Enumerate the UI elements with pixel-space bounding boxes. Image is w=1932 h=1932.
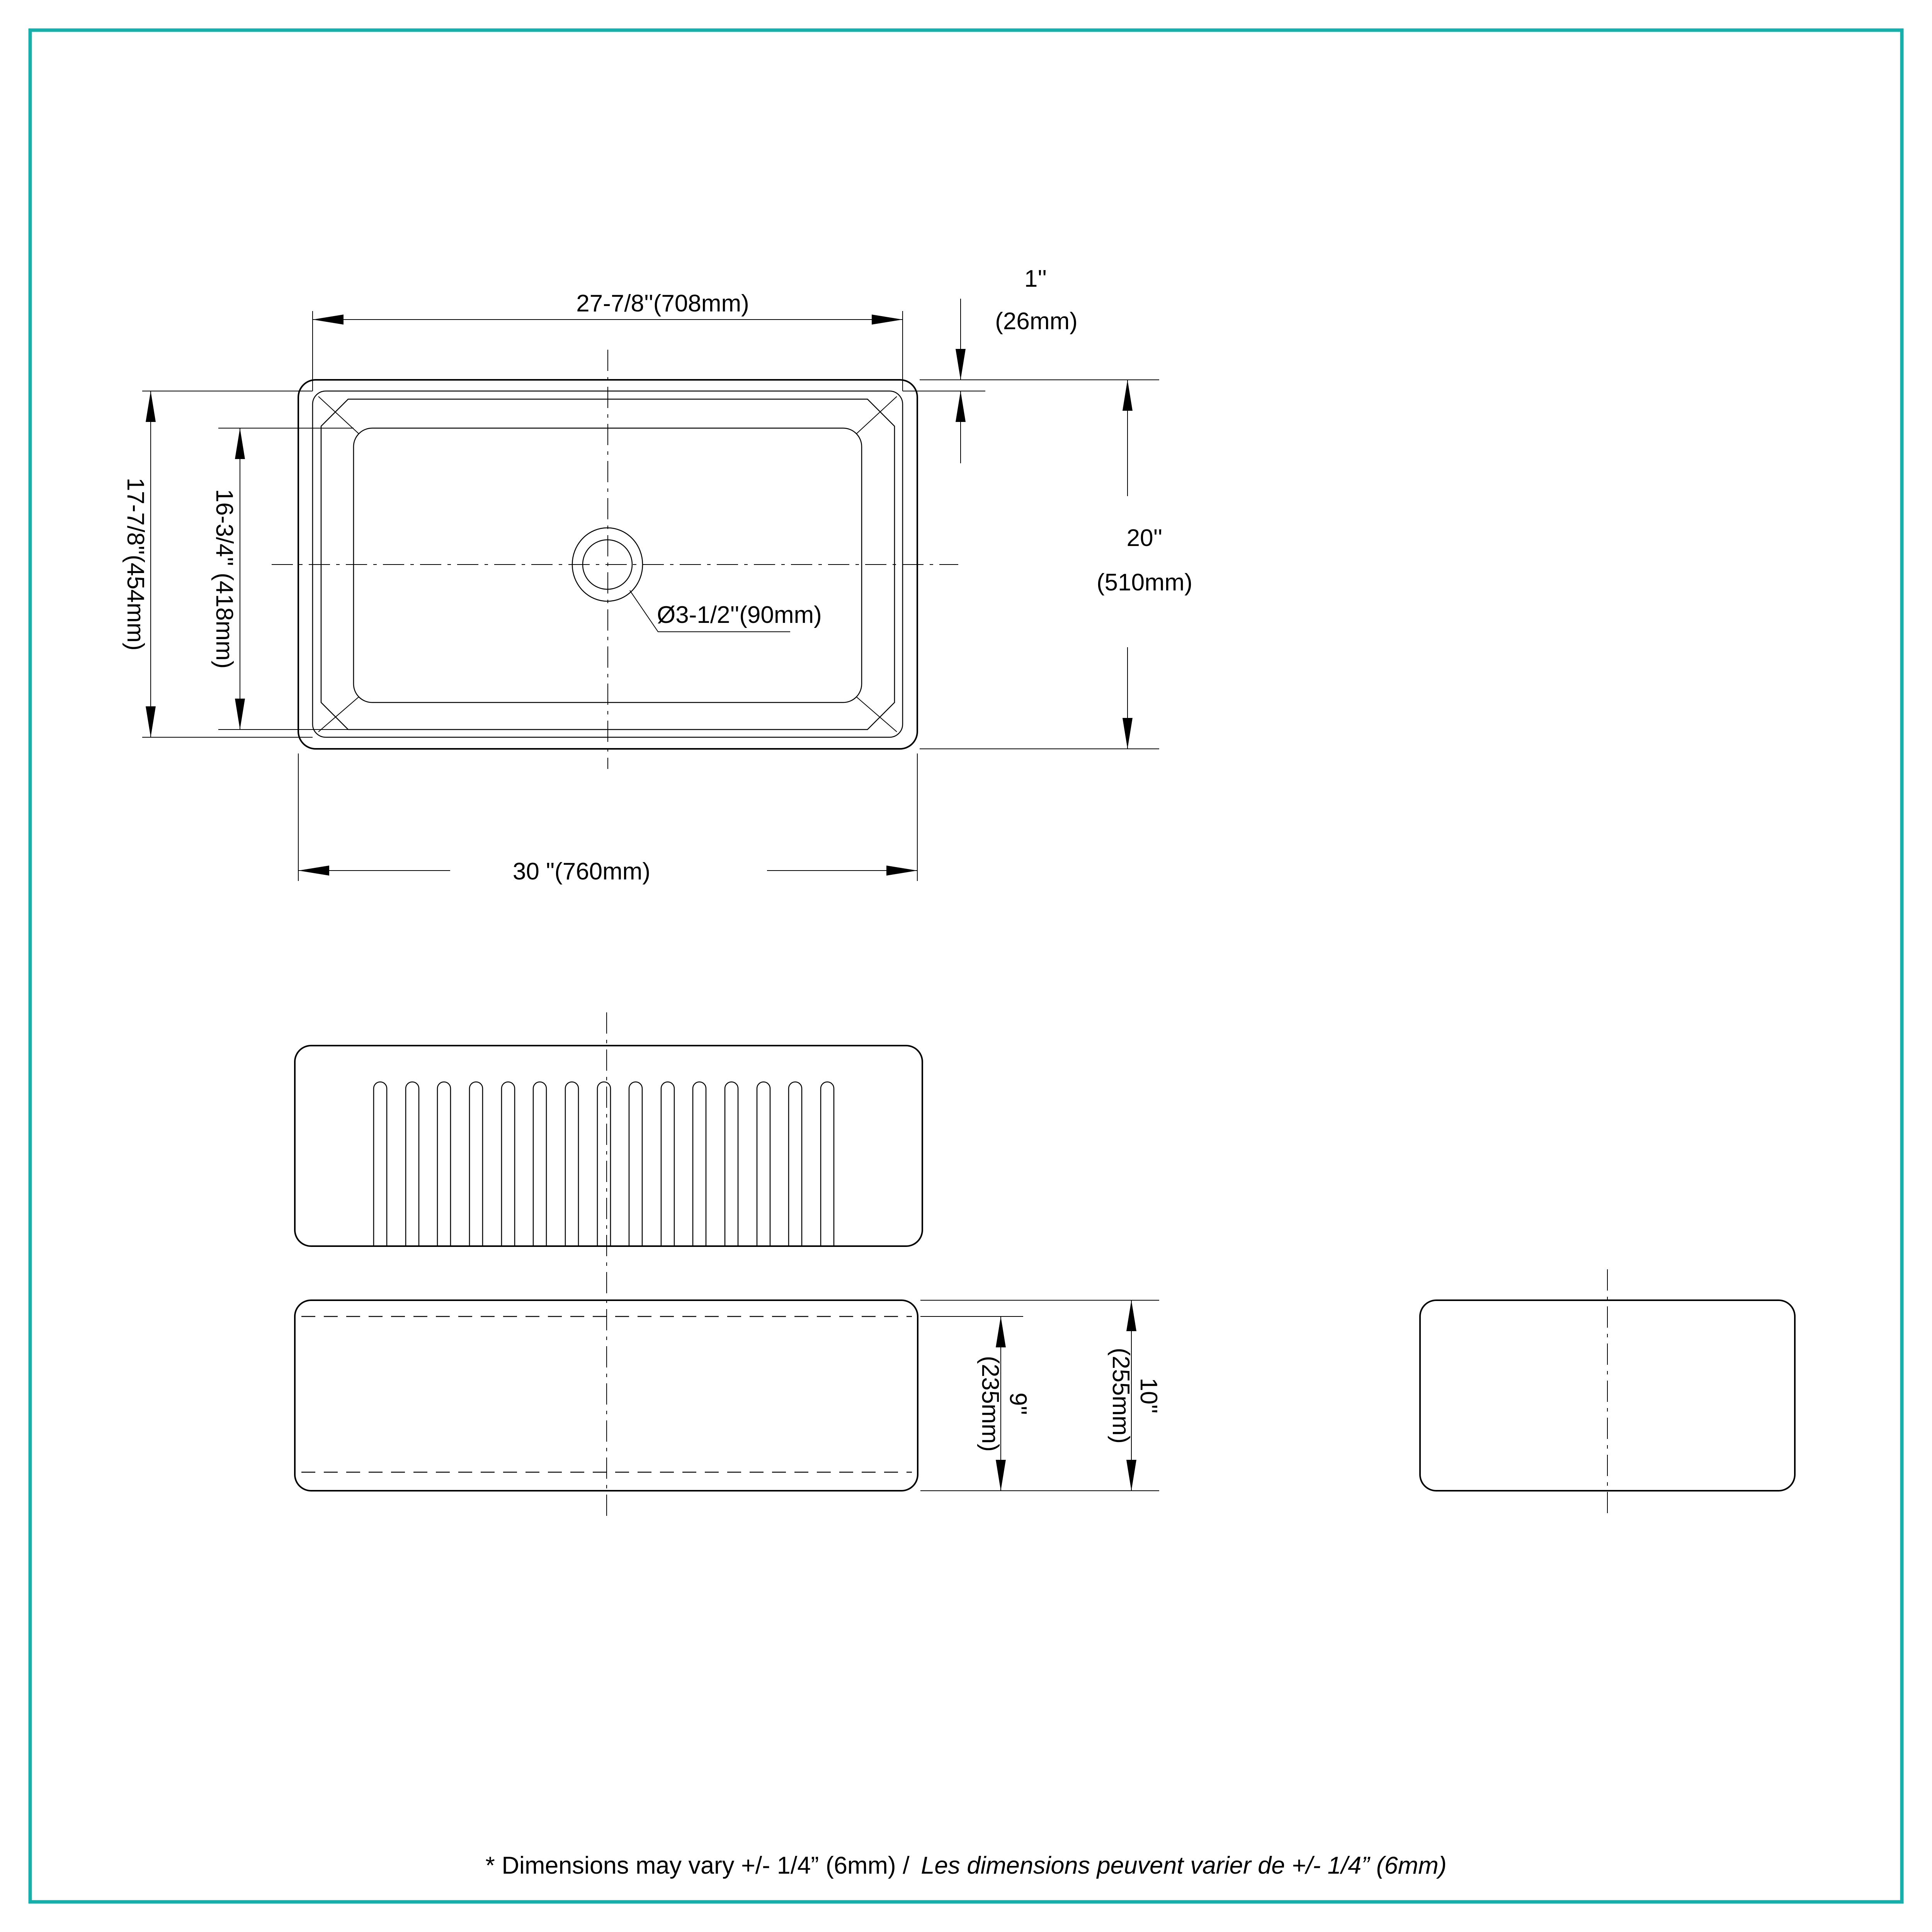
apron-outline (295, 1046, 922, 1246)
dim-depth-label-inches: 20'' (1127, 525, 1163, 551)
arrowhead-down (235, 699, 245, 730)
dim-depth-label-mm: (510mm) (1097, 569, 1192, 596)
arrowhead-up (235, 428, 245, 459)
tolerance-note: * Dimensions may vary +/- 1/4” (6mm) / L… (0, 1852, 1932, 1879)
drain-dimension-label: Ø3-1/2''(90mm) (657, 602, 822, 628)
dim-outer-depth-label: 17-7/8''(454mm) (122, 478, 149, 651)
arrowhead-up (956, 391, 966, 422)
arrowhead-up (1126, 1300, 1136, 1331)
arrowhead-up (996, 1316, 1006, 1347)
dim-rim-label-mm: (26mm) (995, 308, 1078, 335)
front-apron-view (295, 1012, 922, 1519)
dim-apron-height-label-inches: 9'' (1005, 1393, 1031, 1415)
dim-inner-width-label: 27-7/8''(708mm) (576, 290, 749, 317)
dim-overall-height-label-mm: (255mm) (1107, 1348, 1134, 1444)
basin-corner-line-tr (857, 396, 897, 434)
arrowhead-right (872, 315, 903, 325)
tolerance-note-french: Les dimensions peuvent varier de +/- 1/4… (921, 1852, 1446, 1879)
arrowhead-down (1126, 1460, 1136, 1491)
dim-apron-height-label-mm: (235mm) (977, 1356, 1003, 1452)
apron-flutes (374, 1082, 834, 1246)
page-border (30, 30, 1902, 1902)
top-view: Ø3-1/2''(90mm) (272, 350, 958, 769)
dim-inner-depth-label: 16-3/4'' (418mm) (211, 489, 238, 669)
basin-corner-line-bl (318, 697, 359, 732)
basin-corner-line-br (857, 697, 897, 732)
tolerance-note-english: * Dimensions may vary +/- 1/4” (6mm) / (485, 1852, 910, 1879)
dim-rim-label-inches: 1'' (1024, 265, 1047, 292)
arrowhead-down (996, 1460, 1006, 1491)
dim-overall-height-label-inches: 10'' (1135, 1378, 1162, 1414)
dimensions-top-view: 27-7/8''(708mm) 1'' (26mm) 17-7/8''(454m… (122, 265, 1192, 885)
arrowhead-left (313, 315, 344, 325)
technical-drawing-canvas: Ø3-1/2''(90mm) 27-7/8''(708mm) 1'' (26mm… (0, 0, 1932, 1932)
side-section-view: 9'' (235mm) 10'' (255mm) (295, 1300, 1162, 1491)
arrowhead-down (956, 349, 966, 380)
arrowhead-up (146, 391, 156, 422)
arrowhead-left (298, 866, 329, 876)
dim-overall-width-label: 30 "(760mm) (513, 858, 650, 885)
end-view (1420, 1269, 1795, 1519)
arrowhead-up (1122, 380, 1133, 411)
arrowhead-right (886, 866, 917, 876)
arrowhead-down (146, 706, 156, 737)
arrowhead-down (1122, 718, 1133, 749)
